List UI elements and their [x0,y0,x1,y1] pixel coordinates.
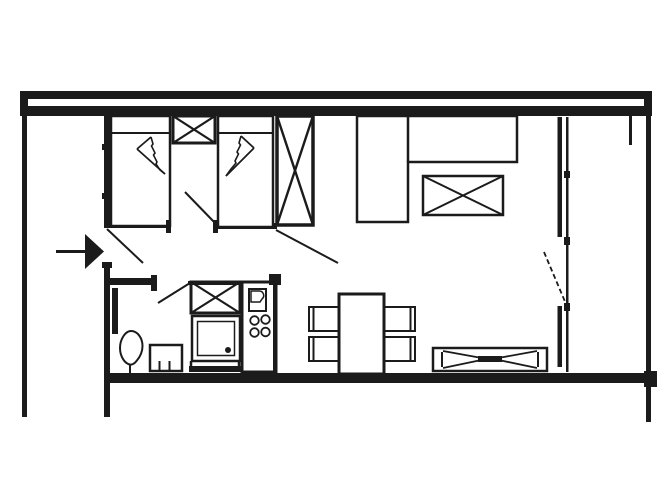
bed-icon [111,116,170,226]
kitchen-cabinet-icon [188,282,243,313]
wardrobe-icon [277,116,313,225]
kitchen-appliance-icon [192,316,240,361]
entrance-arrow-icon [56,234,104,269]
top-exterior-wall [20,91,652,116]
entrance-door-swing [107,229,143,263]
kitchen-sink-icon [249,289,266,311]
coffee-table-icon [423,176,503,215]
kitchen-plinth [189,361,241,372]
window-tick [102,193,112,199]
bedroom-door-swing [185,192,216,224]
interior-left-wall [104,106,110,417]
chair-icon [309,337,339,361]
plant-icon [120,331,143,373]
balcony-door-swing [544,252,566,304]
stool-icon [150,345,182,371]
living-door-swing [276,230,338,263]
floor-plan-canvas [0,0,670,503]
sideboard-icon [433,348,547,371]
window-tick [102,262,112,268]
window-front [558,117,571,372]
chair-icon [384,337,415,361]
nightstand-icon [173,116,215,143]
chair-icon [384,307,415,331]
window-tick [102,144,112,150]
left-exterior-wall [22,99,27,417]
bed-icon [218,116,273,227]
chair-icon [309,307,339,331]
floor-plan-drawing [0,0,670,503]
radiator-icon [112,288,118,334]
kitchen-door-swing [158,283,190,303]
wall-stub [629,113,632,145]
wall-cap [166,220,171,233]
dining-table-icon [339,294,384,374]
